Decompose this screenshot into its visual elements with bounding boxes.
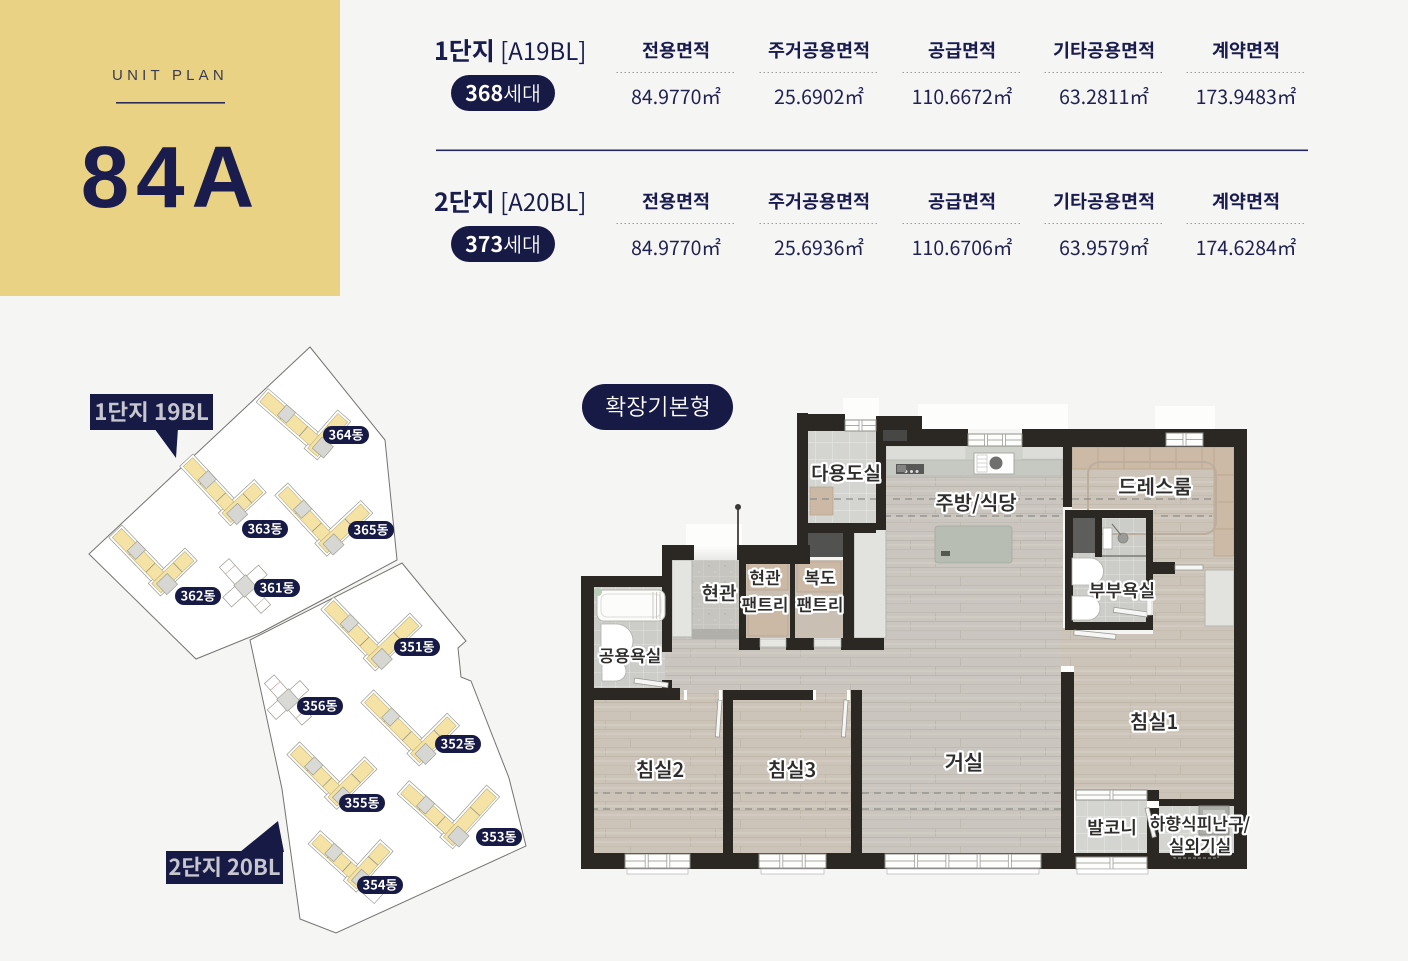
- svg-text:84A: 84A: [81, 129, 262, 226]
- svg-text:UNIT PLAN: UNIT PLAN: [112, 67, 228, 84]
